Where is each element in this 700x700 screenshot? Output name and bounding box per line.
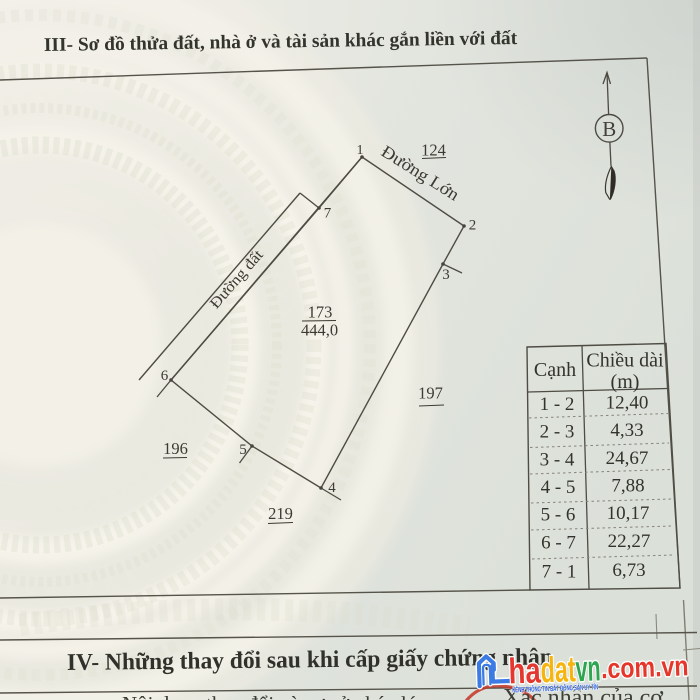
svg-text:6: 6 [161, 368, 169, 384]
svg-text:4 - 5: 4 - 5 [541, 477, 576, 498]
svg-text:2: 2 [469, 218, 477, 234]
svg-text:(m): (m) [611, 371, 640, 393]
svg-text:.com.vn: .com.vn [601, 650, 690, 684]
svg-text:7 - 1: 7 - 1 [542, 562, 577, 583]
svg-text:197: 197 [418, 384, 443, 403]
svg-text:196: 196 [163, 439, 188, 458]
svg-text:444,0: 444,0 [301, 321, 338, 340]
svg-text:5: 5 [239, 442, 247, 458]
svg-text:10,17: 10,17 [607, 503, 650, 524]
svg-text:2 - 3: 2 - 3 [540, 422, 575, 443]
svg-text:6 - 7: 6 - 7 [541, 533, 576, 554]
svg-text:124: 124 [421, 141, 446, 160]
svg-text:12,40: 12,40 [606, 393, 649, 414]
svg-text:5 - 6: 5 - 6 [541, 505, 576, 526]
svg-text:Nội dung thay đổi và cơ sở phá: Nội dung thay đổi và cơ sở pháp lý [122, 692, 418, 700]
svg-text:4,33: 4,33 [610, 420, 643, 441]
svg-text:173: 173 [308, 303, 333, 322]
svg-text:3 - 4: 3 - 4 [540, 450, 575, 471]
svg-text:6,73: 6,73 [612, 560, 645, 581]
svg-text:7: 7 [324, 206, 332, 222]
svg-text:B: B [602, 117, 616, 141]
svg-text:3: 3 [442, 267, 450, 283]
svg-text:1 - 2: 1 - 2 [540, 394, 575, 415]
svg-text:22,27: 22,27 [608, 531, 651, 552]
svg-text:Chiều dài: Chiều dài [586, 350, 664, 372]
svg-text:219: 219 [268, 504, 293, 523]
svg-text:7,88: 7,88 [611, 476, 644, 497]
svg-text:24,67: 24,67 [606, 448, 649, 469]
svg-text:1: 1 [357, 143, 364, 158]
svg-text:Cạnh: Cạnh [534, 359, 576, 381]
svg-text:4: 4 [328, 480, 336, 496]
